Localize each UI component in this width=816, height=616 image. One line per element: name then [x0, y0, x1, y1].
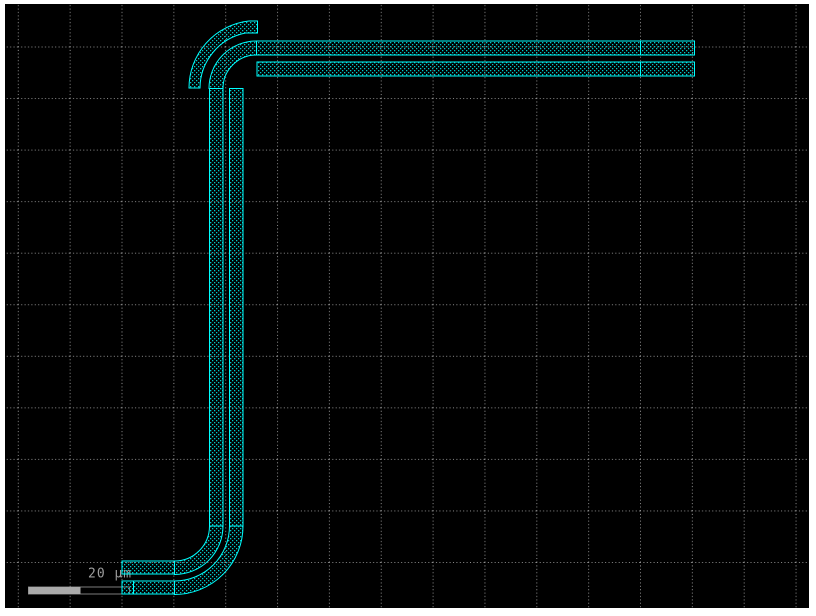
slot-b-bottom-straight[interactable]	[134, 581, 175, 594]
slot-b-top-straight-1[interactable]	[257, 62, 641, 76]
slot-b-bottom-end[interactable]	[122, 581, 134, 594]
slot-b-top-straight-2[interactable]	[641, 62, 695, 76]
slot-a-top-straight-1[interactable]	[257, 41, 641, 55]
slot-b-vertical-straight[interactable]	[230, 89, 244, 527]
slot-a-vertical-straight[interactable]	[210, 89, 224, 527]
slot-a-bottom-straight[interactable]	[122, 561, 175, 574]
grid	[5, 4, 809, 608]
slot-a-top-straight-2[interactable]	[641, 41, 695, 55]
scale-bar-fill	[29, 587, 81, 594]
layout-canvas[interactable]: 20 μm	[0, 0, 816, 616]
